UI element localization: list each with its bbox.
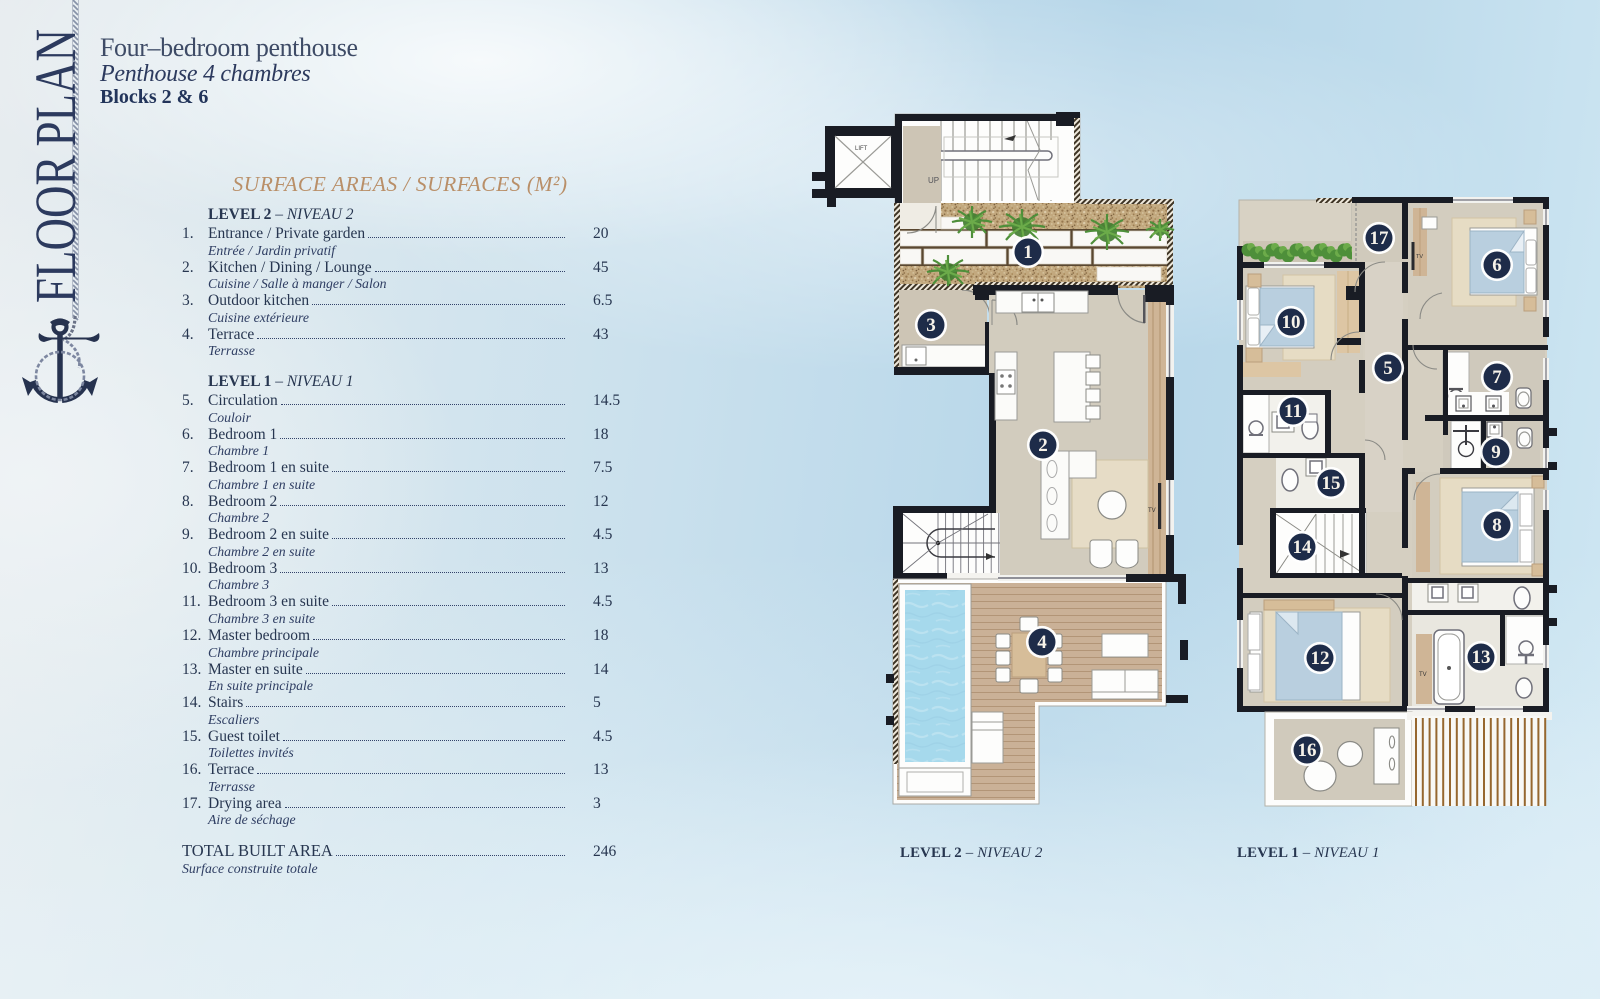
svg-text:TV: TV bbox=[1148, 508, 1156, 514]
svg-text:9: 9 bbox=[1491, 442, 1501, 463]
svg-text:UP: UP bbox=[928, 176, 939, 185]
svg-text:1: 1 bbox=[1023, 242, 1033, 263]
svg-text:4: 4 bbox=[1037, 632, 1047, 653]
svg-text:2: 2 bbox=[1038, 435, 1048, 456]
svg-text:LIFT: LIFT bbox=[855, 146, 868, 152]
svg-text:11: 11 bbox=[1284, 401, 1302, 422]
svg-text:7: 7 bbox=[1492, 367, 1502, 388]
svg-text:17: 17 bbox=[1370, 228, 1390, 249]
svg-text:10: 10 bbox=[1282, 312, 1301, 333]
svg-text:14: 14 bbox=[1293, 537, 1313, 558]
svg-text:13: 13 bbox=[1472, 647, 1491, 668]
svg-text:8: 8 bbox=[1492, 515, 1502, 536]
svg-text:3: 3 bbox=[926, 315, 936, 336]
svg-text:12: 12 bbox=[1311, 648, 1330, 669]
svg-text:6: 6 bbox=[1492, 255, 1502, 276]
svg-text:TV: TV bbox=[1416, 254, 1423, 260]
svg-text:15: 15 bbox=[1322, 473, 1341, 494]
svg-text:TV: TV bbox=[1419, 672, 1427, 678]
svg-text:16: 16 bbox=[1298, 740, 1317, 761]
svg-text:5: 5 bbox=[1383, 358, 1393, 379]
